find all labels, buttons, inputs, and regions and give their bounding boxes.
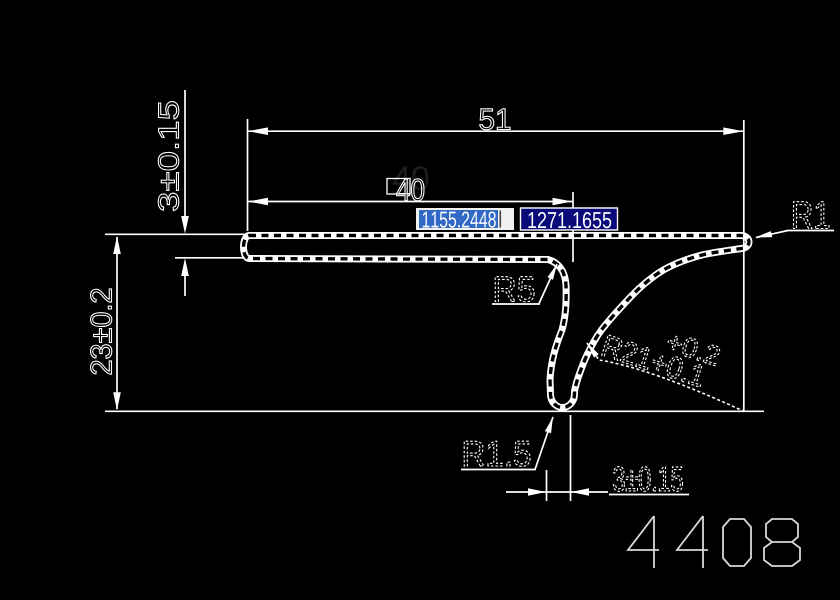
svg-text:R1: R1 bbox=[791, 195, 831, 238]
